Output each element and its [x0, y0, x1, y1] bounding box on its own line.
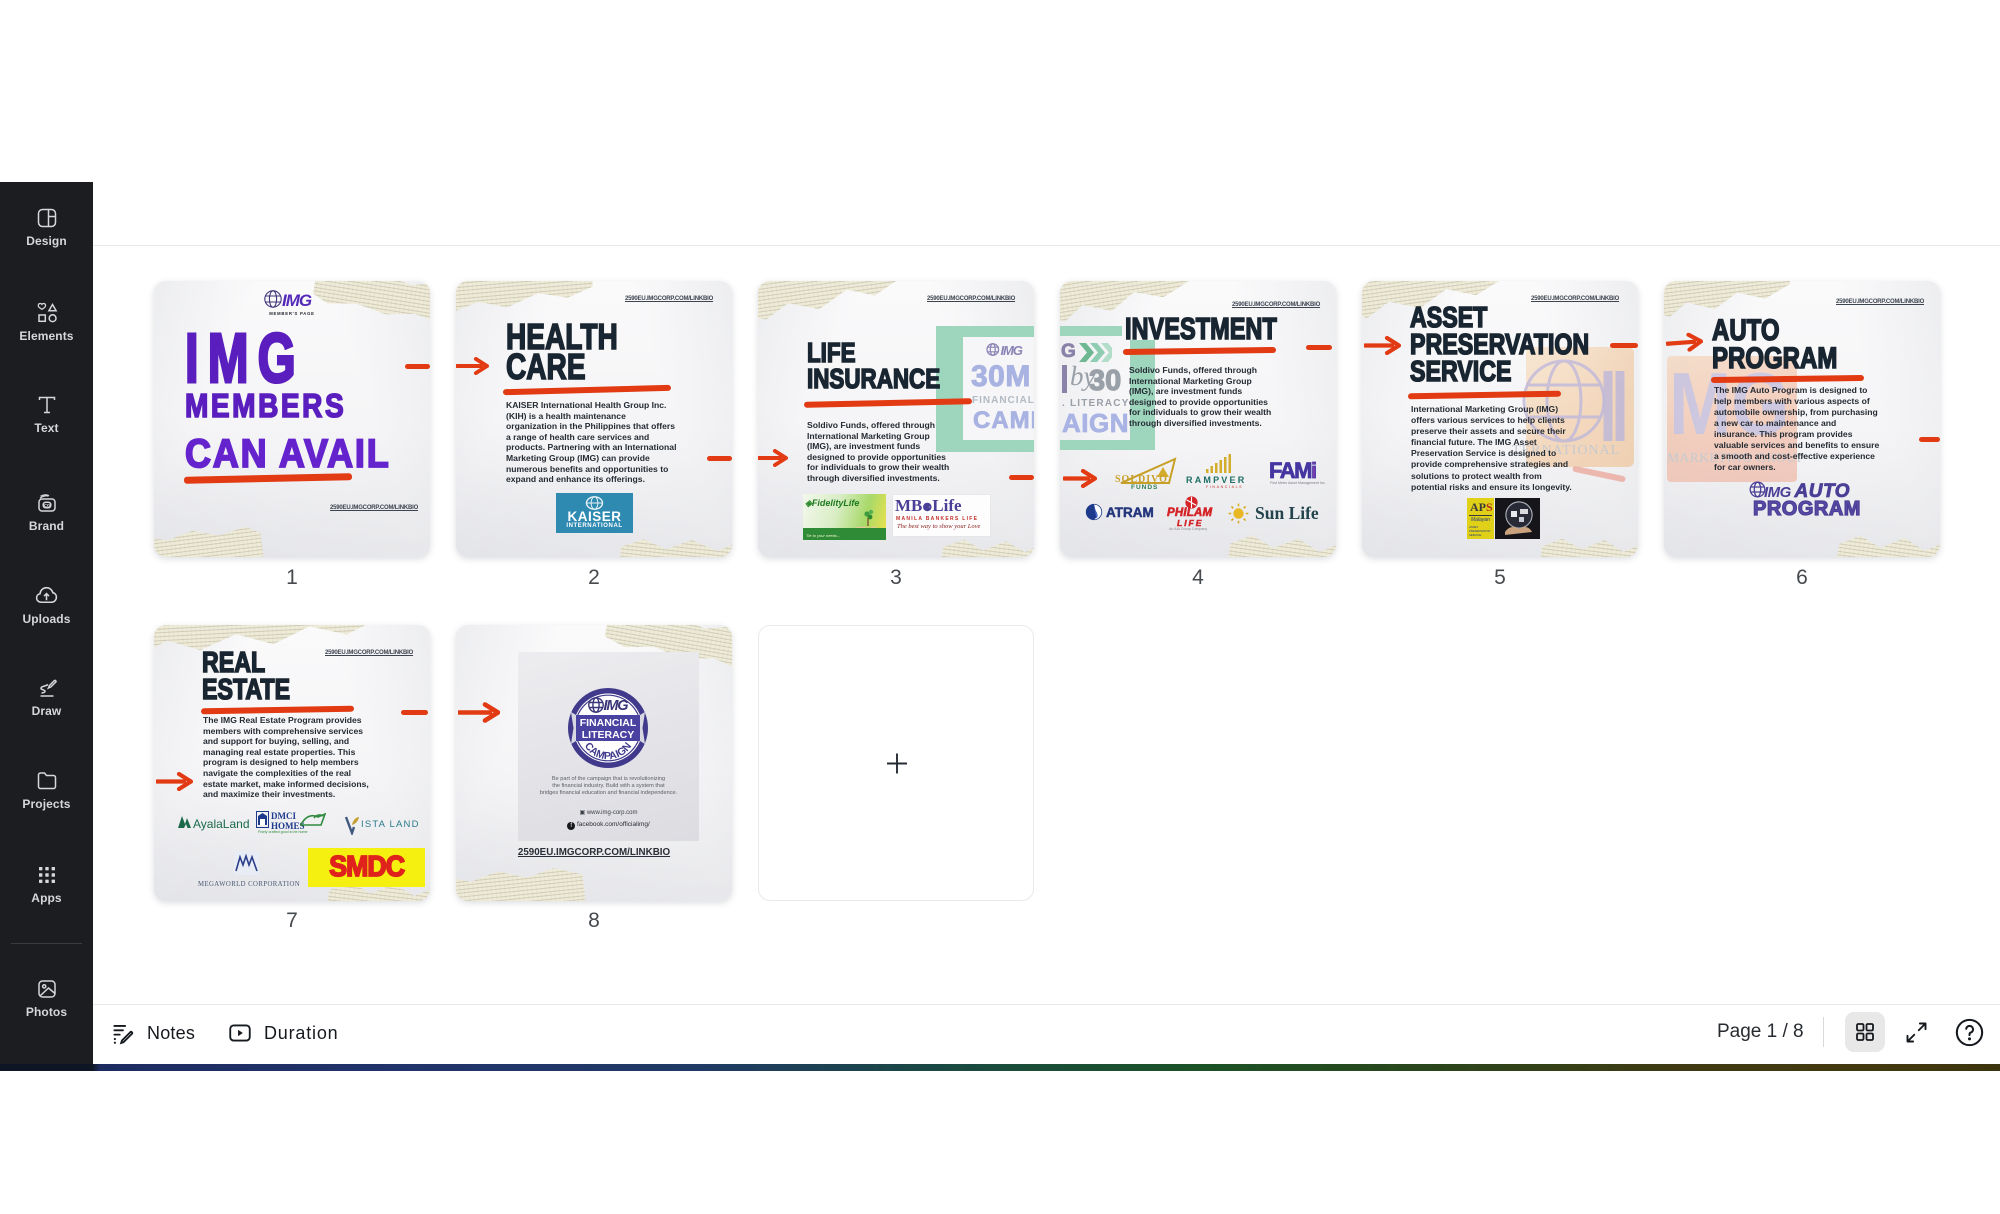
svg-text:co: co	[43, 503, 50, 509]
svg-text:LITERACY: LITERACY	[582, 729, 635, 741]
svg-text:IMG: IMG	[282, 291, 312, 310]
svg-text:IMG: IMG	[1001, 343, 1023, 358]
svg-text:FINANCIAL: FINANCIAL	[580, 717, 637, 729]
svg-text:IMG: IMG	[604, 698, 629, 714]
